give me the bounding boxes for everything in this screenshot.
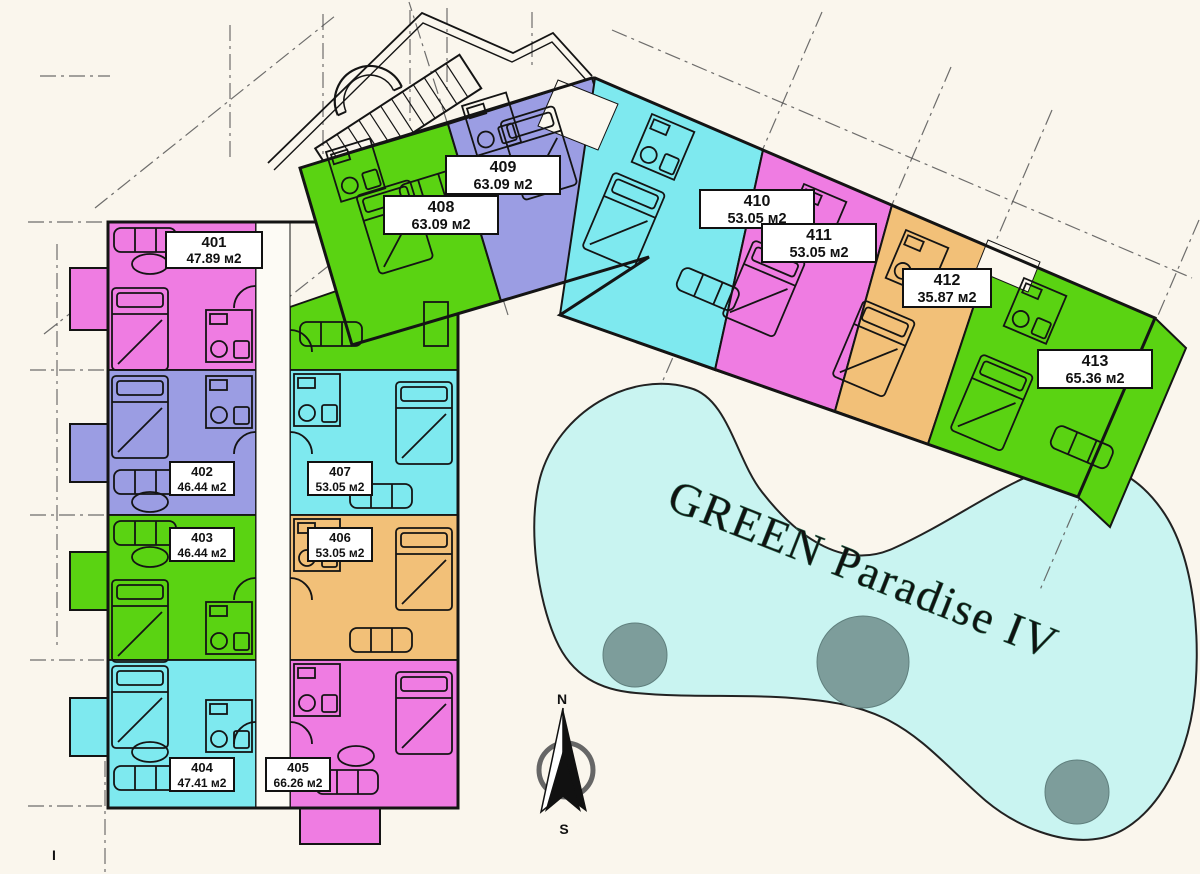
unit-number: 409 [490,159,517,176]
unit-405-label[interactable]: 405 66.26 м2 [266,758,330,791]
unit-407-label[interactable]: 407 53.05 м2 [308,462,372,495]
unit-number: 407 [329,464,351,479]
unit-number: 403 [191,530,213,545]
unit-number: 401 [201,234,226,251]
pool-island [603,623,667,687]
unit-area: 53.05 м2 [789,245,848,261]
unit-area: 66.26 м2 [274,776,323,790]
balcony [300,808,380,844]
unit-413-label[interactable]: 413 65.36 м2 [1038,350,1152,388]
balcony [70,698,108,756]
unit-number: 408 [428,199,455,216]
unit-411-label[interactable]: 411 53.05 м2 [762,224,876,262]
unit-406-label[interactable]: 406 53.05 м2 [308,528,372,561]
corner-tick: I [52,847,56,863]
unit-number: 406 [329,530,351,545]
unit-area: 53.05 м2 [316,480,365,494]
balcony [70,268,108,330]
unit-412-label[interactable]: 412 35.87 м2 [903,269,991,307]
unit-number: 405 [287,760,309,775]
unit-area: 46.44 м2 [178,480,227,494]
unit-404-label[interactable]: 404 47.41 м2 [170,758,234,791]
unit-area: 47.89 м2 [186,251,241,266]
unit-area: 65.36 м2 [1065,371,1124,387]
unit-area: 53.05 м2 [316,546,365,560]
balcony [70,552,108,610]
unit-area: 63.09 м2 [473,177,532,193]
unit-403-label[interactable]: 403 46.44 м2 [170,528,234,561]
pool-island [1045,760,1109,824]
pool-island [817,616,909,708]
unit-number: 402 [191,464,213,479]
unit-409-label[interactable]: 409 63.09 м2 [446,156,560,194]
unit-402-label[interactable]: 402 46.44 м2 [170,462,234,495]
floor-plan-canvas: GREEN Paradise IV [0,0,1200,874]
unit-number: 404 [191,760,213,775]
unit-area: 47.41 м2 [178,776,227,790]
compass-south-label: S [559,821,568,837]
unit-number: 411 [806,227,832,244]
corridor [256,222,290,808]
unit-410-label[interactable]: 410 53.05 м2 [700,190,814,228]
unit-area: 63.09 м2 [411,217,470,233]
unit-number: 413 [1082,353,1109,370]
unit-number: 410 [744,193,771,210]
unit-401-label[interactable]: 401 47.89 м2 [166,232,262,268]
unit-area: 46.44 м2 [178,546,227,560]
compass-north-label: N [557,691,567,707]
balcony [70,424,108,482]
unit-area: 35.87 м2 [917,290,976,306]
unit-408-label[interactable]: 408 63.09 м2 [384,196,498,234]
unit-number: 412 [934,272,961,289]
